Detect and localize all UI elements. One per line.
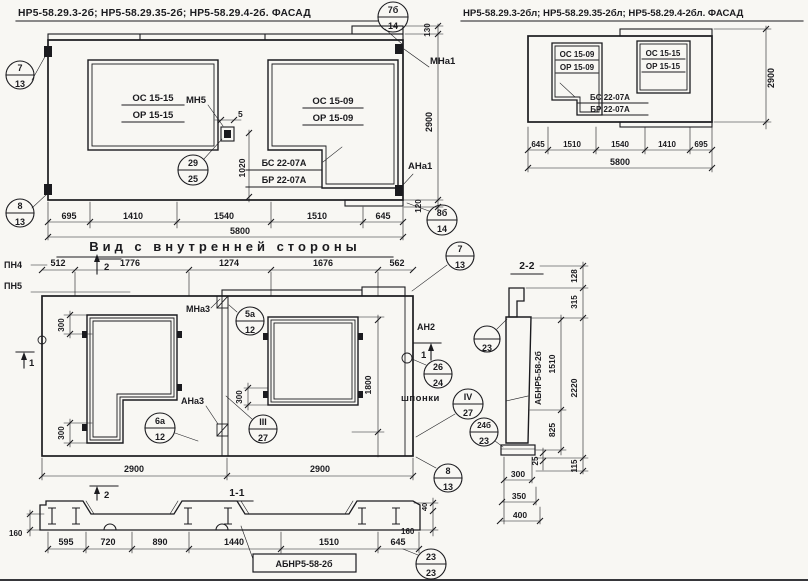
svg-text:2220: 2220 bbox=[569, 378, 579, 397]
section-1-marker-left: 1 bbox=[16, 352, 35, 369]
inner-view: Вид с внутренней стороны ПН4 ПН5 512 177… bbox=[4, 239, 483, 501]
dim: 695 bbox=[694, 140, 708, 149]
anchor-mark-icon bbox=[44, 184, 52, 195]
balloon-III-27: III 27 bbox=[226, 396, 277, 443]
ana3-label: АНа3 bbox=[181, 396, 204, 406]
dim-total: 5800 bbox=[230, 226, 250, 236]
dim: 1510 bbox=[563, 140, 581, 149]
dim: 2900 bbox=[124, 464, 144, 474]
dim: 512 bbox=[50, 258, 65, 268]
window-mark: ОС 15-15 bbox=[132, 93, 174, 104]
section-1-marker-right: 1 bbox=[414, 343, 441, 361]
dim: 720 bbox=[100, 537, 115, 547]
svg-text:IV: IV bbox=[464, 392, 473, 402]
balloon-23-23: 23 23 bbox=[403, 549, 446, 579]
anchor-mark-icon bbox=[395, 185, 403, 196]
lintel-mark: БС 22-07А bbox=[590, 93, 630, 102]
facade-left-mn5: МН5 5 bbox=[186, 95, 243, 141]
svg-text:23: 23 bbox=[479, 436, 489, 446]
dim: 1540 bbox=[214, 211, 234, 221]
svg-text:40: 40 bbox=[420, 503, 429, 511]
dim: 1540 bbox=[611, 140, 629, 149]
inner-view-bottom-dims: 2900 2900 bbox=[39, 458, 416, 480]
anchor-mark-icon bbox=[44, 46, 52, 57]
dim: 1440 bbox=[224, 537, 244, 547]
balloon-26-24: 26 24 bbox=[412, 359, 452, 388]
facade-right-lintel-marks: БС 22-07А БР 22-07А bbox=[560, 83, 648, 115]
svg-text:160: 160 bbox=[9, 529, 23, 538]
svg-text:7: 7 bbox=[17, 63, 22, 73]
dim: 1510 bbox=[307, 211, 327, 221]
pn4-label: ПН4 bbox=[4, 260, 22, 270]
dim: 562 bbox=[389, 258, 404, 268]
svg-text:7: 7 bbox=[457, 244, 462, 254]
pn5-label: ПН5 bbox=[4, 281, 22, 291]
svg-text:2900: 2900 bbox=[766, 68, 776, 88]
svg-text:23: 23 bbox=[482, 343, 492, 353]
svg-text:7б: 7б bbox=[388, 5, 399, 15]
facade-left-bottom-dims: 695 1410 1540 1510 645 5800 bbox=[45, 202, 406, 240]
dim-1020: 1020 bbox=[237, 130, 252, 202]
facade-right-window-right: ОС 15-15 ОР 15-15 bbox=[637, 41, 690, 93]
svg-text:128: 128 bbox=[570, 269, 579, 283]
section-1-1: 1-1 160 40 160 595 720 890 1440 1510 645 bbox=[9, 488, 446, 579]
panel-mark-vertical: АБНР5-58-2б bbox=[533, 351, 543, 405]
dim: 2900 bbox=[310, 464, 330, 474]
svg-text:300: 300 bbox=[57, 318, 66, 332]
facade-right-title: НР5-58.29.3-2бл; НР5-58.29.35-2бл; НР5-5… bbox=[463, 8, 744, 19]
balloon-7-13: 7 13 bbox=[6, 53, 47, 89]
balloon-8-13-inner: 8 13 bbox=[416, 457, 462, 492]
svg-text:1020: 1020 bbox=[237, 158, 247, 177]
edge-anchor-icon bbox=[402, 353, 412, 363]
inner-view-opening-right bbox=[263, 317, 363, 405]
facade-left-window-right: ОС 15-09 ОР 15-09 bbox=[268, 60, 398, 188]
dim: 1274 bbox=[219, 258, 239, 268]
balloon-24b-23: 24б 23 bbox=[470, 418, 503, 447]
section-2-2: 2-2 АБНР5-58-2б 1510 825 128 315 2220 11… bbox=[470, 261, 588, 524]
svg-text:300: 300 bbox=[57, 426, 66, 440]
dim: 645 bbox=[390, 537, 405, 547]
dim: 890 bbox=[152, 537, 167, 547]
balloon-7-13-inner: 7 13 bbox=[412, 242, 474, 291]
window-mark: ОР 15-15 bbox=[646, 62, 681, 71]
anchor-mark-icon bbox=[395, 44, 403, 54]
dim: 595 bbox=[58, 537, 73, 547]
window-mark: ОР 15-09 bbox=[313, 113, 354, 124]
mn5-label: МН5 bbox=[186, 95, 207, 106]
dim-5: 5 bbox=[238, 109, 243, 119]
drawing-sheet: НР5-58.29.3-2б; НР5-58.29.35-2б; НР5-58.… bbox=[0, 0, 808, 581]
svg-text:300: 300 bbox=[511, 469, 525, 479]
dim-1800: 1800 bbox=[352, 315, 384, 457]
svg-text:300: 300 bbox=[235, 390, 244, 404]
section-2-marker-bottom: 2 bbox=[90, 486, 118, 501]
svg-text:2: 2 bbox=[104, 490, 109, 501]
dim-total: 5800 bbox=[610, 157, 630, 167]
dim-right-2900: 130 2900 120 bbox=[404, 23, 443, 213]
svg-text:13: 13 bbox=[15, 79, 25, 89]
svg-text:8б: 8б bbox=[437, 208, 448, 218]
lintel-mark: БР 22-07А bbox=[590, 105, 630, 114]
dim: 1676 bbox=[313, 258, 333, 268]
joint-mark-bottom bbox=[217, 424, 228, 436]
svg-text:III: III bbox=[259, 417, 267, 427]
svg-text:6а: 6а bbox=[155, 416, 166, 426]
svg-text:400: 400 bbox=[513, 510, 527, 520]
window-mark: ОС 15-09 bbox=[312, 96, 353, 107]
facade-left-lintel-marks: БС 22-07А БР 22-07А bbox=[246, 147, 342, 187]
svg-text:26: 26 bbox=[433, 362, 443, 372]
facade-right: НР5-58.29.3-2бл; НР5-58.29.35-2бл; НР5-5… bbox=[461, 8, 803, 172]
mna3-label: МНа3 bbox=[186, 304, 210, 314]
lintel-mark: БР 22-07А bbox=[262, 175, 307, 185]
svg-text:25: 25 bbox=[531, 456, 540, 465]
lintel-mark: БС 22-07А bbox=[262, 158, 307, 168]
svg-text:315: 315 bbox=[570, 295, 579, 309]
svg-text:27: 27 bbox=[463, 408, 473, 418]
svg-text:14: 14 bbox=[388, 21, 398, 31]
balloon-bottom: 25 bbox=[188, 174, 198, 184]
ana1-label: АНа1 bbox=[408, 161, 433, 172]
balloon-5a-12: 5а 12 bbox=[229, 305, 264, 335]
dim: 1410 bbox=[658, 140, 676, 149]
joint-mark-top bbox=[217, 296, 228, 308]
dim: 1776 bbox=[120, 258, 140, 268]
section-2-2-title: 2-2 bbox=[519, 261, 535, 272]
anchor-symbols bbox=[48, 508, 400, 530]
dim: 645 bbox=[531, 140, 545, 149]
svg-text:23: 23 bbox=[426, 552, 436, 562]
svg-text:27: 27 bbox=[258, 433, 268, 443]
svg-text:1: 1 bbox=[421, 350, 427, 361]
svg-text:8: 8 bbox=[445, 466, 450, 476]
svg-text:12: 12 bbox=[245, 325, 255, 335]
balloon-top: 29 bbox=[188, 158, 198, 168]
svg-text:1510: 1510 bbox=[547, 354, 557, 373]
svg-text:24: 24 bbox=[433, 378, 443, 388]
balloon-8-13: 8 13 bbox=[6, 194, 47, 227]
an2-label: АН2 bbox=[417, 322, 435, 332]
facade-right-dims: 645 1510 1540 1410 695 5800 2900 bbox=[525, 26, 776, 172]
svg-text:13: 13 bbox=[443, 482, 453, 492]
svg-text:23: 23 bbox=[426, 568, 436, 578]
dim: 695 bbox=[61, 211, 76, 221]
svg-text:130: 130 bbox=[423, 23, 432, 37]
window-mark: ОР 15-15 bbox=[133, 110, 174, 121]
section-1-1-dims: 160 40 160 595 720 890 1440 1510 645 bbox=[9, 498, 438, 553]
svg-text:1800: 1800 bbox=[363, 375, 373, 394]
facade-left-title: НР5-58.29.3-2б; НР5-58.29.35-2б; НР5-58.… bbox=[18, 7, 311, 19]
svg-text:825: 825 bbox=[547, 423, 557, 437]
svg-text:2: 2 bbox=[104, 262, 109, 273]
window-mark: ОС 15-15 bbox=[646, 49, 681, 58]
inner-view-opening-left bbox=[82, 315, 182, 443]
svg-text:14: 14 bbox=[437, 224, 447, 234]
dim: 1410 bbox=[123, 211, 143, 221]
svg-text:160: 160 bbox=[401, 527, 415, 536]
inner-view-title: Вид с внутренней стороны bbox=[89, 239, 361, 254]
svg-text:1: 1 bbox=[29, 358, 35, 369]
shponki-label: шпонки bbox=[401, 393, 440, 404]
panel-drawing: НР5-58.29.3-2б; НР5-58.29.35-2б; НР5-58.… bbox=[0, 0, 808, 581]
svg-text:12: 12 bbox=[155, 432, 165, 442]
balloon-6a-12: 6а 12 bbox=[145, 413, 198, 443]
window-mark: ОР 15-09 bbox=[560, 63, 595, 72]
svg-text:13: 13 bbox=[15, 217, 25, 227]
section-1-1-title: 1-1 bbox=[229, 488, 245, 499]
svg-text:2900: 2900 bbox=[424, 112, 434, 132]
svg-text:5а: 5а bbox=[245, 309, 256, 319]
facade-left: НР5-58.29.3-2б; НР5-58.29.35-2б; НР5-58.… bbox=[6, 2, 457, 240]
dim: 1510 bbox=[319, 537, 339, 547]
mna1-label: МНа1 bbox=[430, 56, 456, 67]
dim: 645 bbox=[375, 211, 390, 221]
svg-text:350: 350 bbox=[512, 491, 526, 501]
svg-text:13: 13 bbox=[455, 260, 465, 270]
svg-text:24б: 24б bbox=[477, 421, 491, 430]
svg-text:8: 8 bbox=[17, 201, 22, 211]
svg-text:115: 115 bbox=[570, 459, 579, 472]
window-mark: ОС 15-09 bbox=[560, 50, 595, 59]
svg-text:АБНР5-58-2б: АБНР5-58-2б bbox=[275, 559, 332, 569]
balloon-23: 23 bbox=[474, 319, 507, 353]
